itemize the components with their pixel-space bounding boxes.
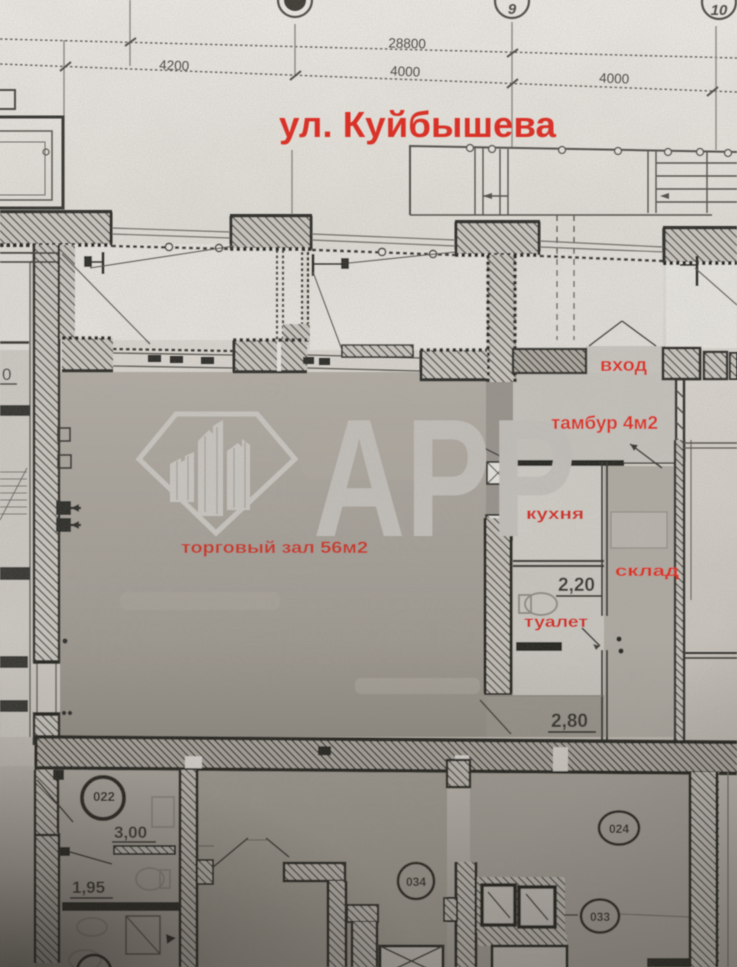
svg-text:0: 0 xyxy=(2,365,11,384)
svg-text:9: 9 xyxy=(508,1,517,18)
svg-text:склад: склад xyxy=(615,563,679,580)
svg-text:2,20: 2,20 xyxy=(558,575,595,596)
svg-text:28800: 28800 xyxy=(388,36,426,52)
svg-text:3,00: 3,00 xyxy=(114,823,147,842)
svg-text:вход: вход xyxy=(600,355,648,375)
svg-text:торговый зал 56м2: торговый зал 56м2 xyxy=(181,539,368,557)
svg-text:10: 10 xyxy=(711,2,728,19)
svg-text:1,95: 1,95 xyxy=(72,878,105,897)
svg-text:024: 024 xyxy=(609,822,629,836)
svg-text:4200: 4200 xyxy=(159,57,190,73)
svg-text:кухня: кухня xyxy=(526,506,584,523)
svg-text:тамбур 4м2: тамбур 4м2 xyxy=(551,413,658,433)
svg-text:034: 034 xyxy=(406,875,426,889)
svg-text:4000: 4000 xyxy=(390,63,421,79)
svg-text:022: 022 xyxy=(93,789,115,804)
svg-text:4000: 4000 xyxy=(599,70,630,86)
svg-text:2,80: 2,80 xyxy=(551,711,588,732)
svg-text:033: 033 xyxy=(590,910,610,924)
svg-text:ул. Куйбышева: ул. Куйбышева xyxy=(279,104,557,145)
svg-text:туалет: туалет xyxy=(524,614,588,631)
